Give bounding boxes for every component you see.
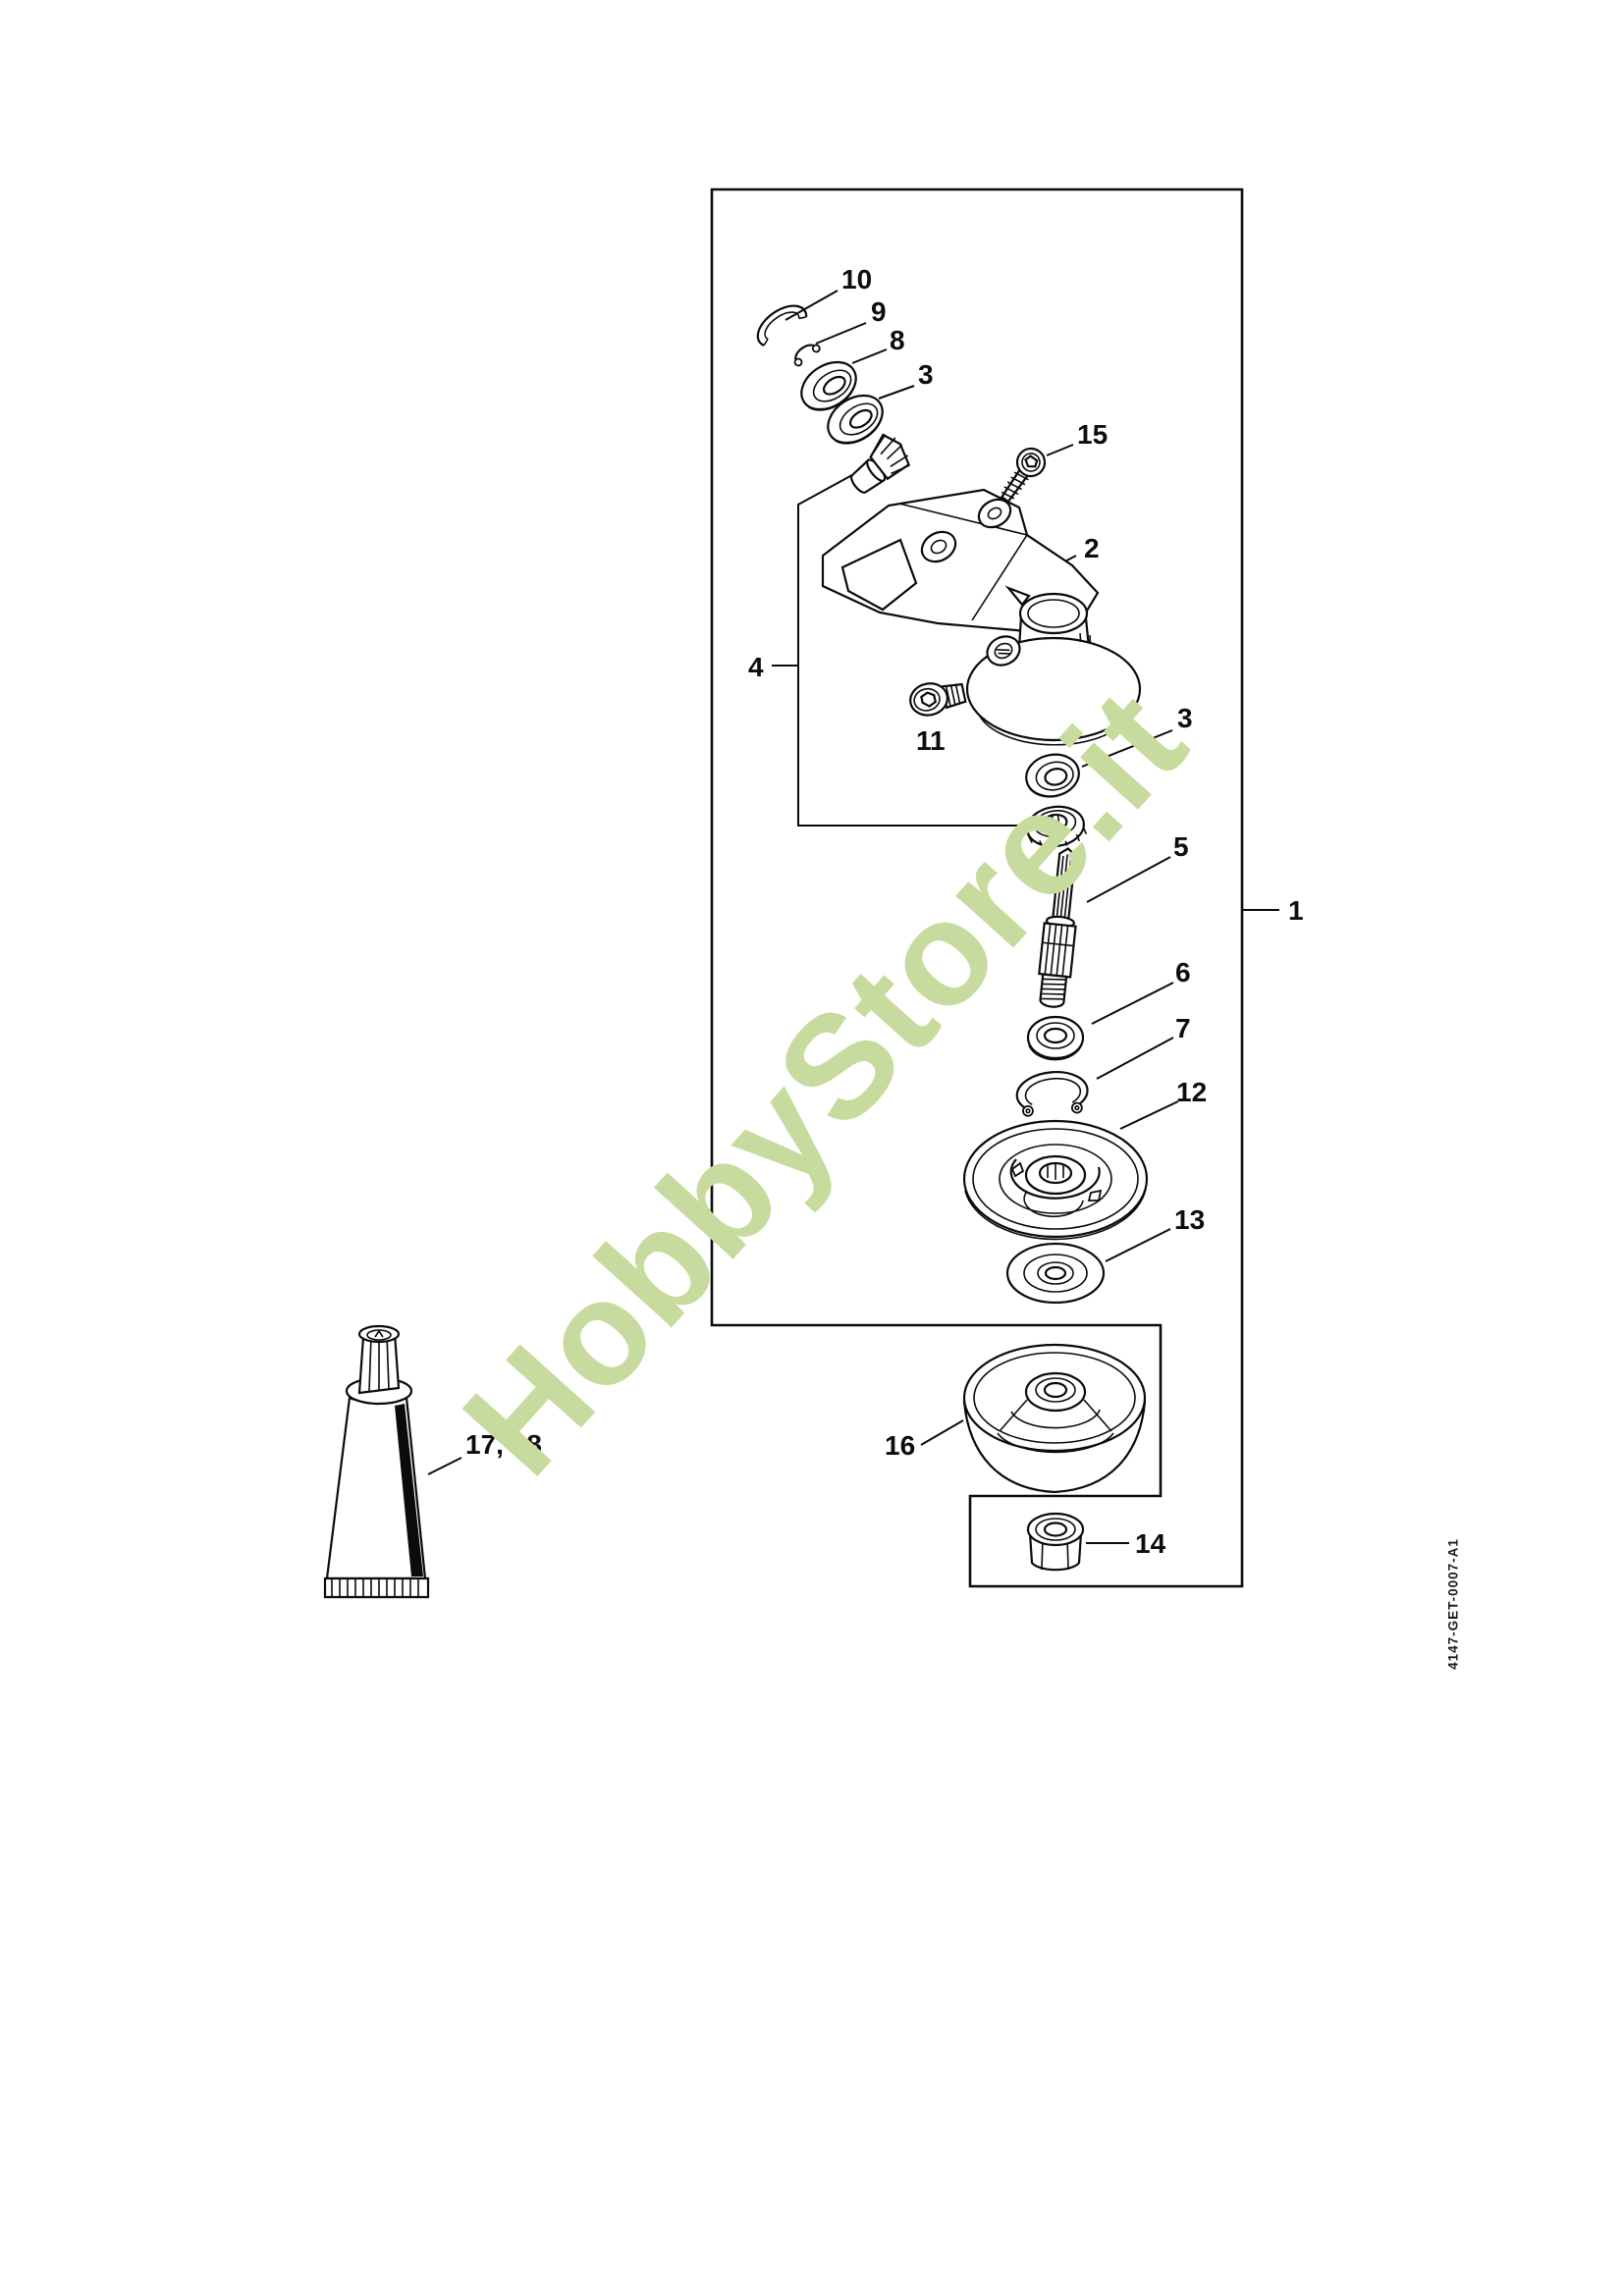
callout-7: 7 [1175,1013,1191,1043]
callout-1: 1 [1288,895,1304,926]
parts-diagram-page: 10 9 8 3 15 2 4 11 3 5 1 6 7 12 13 16 14… [0,0,1624,2296]
callout-13: 13 [1174,1204,1205,1235]
leader-7 [1097,1038,1173,1079]
callout-16: 16 [885,1430,915,1461]
callout-9: 9 [871,296,887,327]
leader-15 [1047,445,1073,455]
rider-plate-12 [964,1121,1147,1239]
plug-screw-11 [907,676,966,719]
callout-3-lower: 3 [1177,703,1193,733]
leader-9 [816,323,866,344]
collar-nut-14 [1028,1514,1083,1570]
drawing-code: 4147-GET-0007-A1 [1446,1538,1461,1670]
callout-14: 14 [1135,1528,1166,1559]
leader-8 [852,349,887,363]
callout-12: 12 [1176,1077,1207,1107]
callout-11: 11 [916,725,946,756]
callout-6: 6 [1175,957,1191,988]
callout-2: 2 [1084,533,1100,563]
leader-6 [1092,983,1173,1024]
ball-bearing-6 [1028,1017,1083,1060]
callout-4: 4 [748,652,764,682]
callout-8: 8 [890,325,905,355]
callout-3-upper: 3 [918,359,934,390]
leader-16 [921,1420,963,1445]
leader-17-18 [428,1458,461,1474]
retaining-ring-10 [750,297,808,347]
protective-cup-16 [964,1345,1145,1492]
grease-tube-17-18 [325,1326,428,1597]
leader-3-upper [879,386,914,399]
callout-15: 15 [1077,419,1108,450]
callout-10: 10 [841,264,872,294]
snap-ring-7 [1015,1069,1090,1119]
thrust-washer-13 [1007,1244,1104,1303]
callout-5: 5 [1173,831,1189,862]
screw-15 [994,444,1050,507]
leader-12 [1120,1101,1178,1129]
leader-13 [1106,1229,1170,1261]
